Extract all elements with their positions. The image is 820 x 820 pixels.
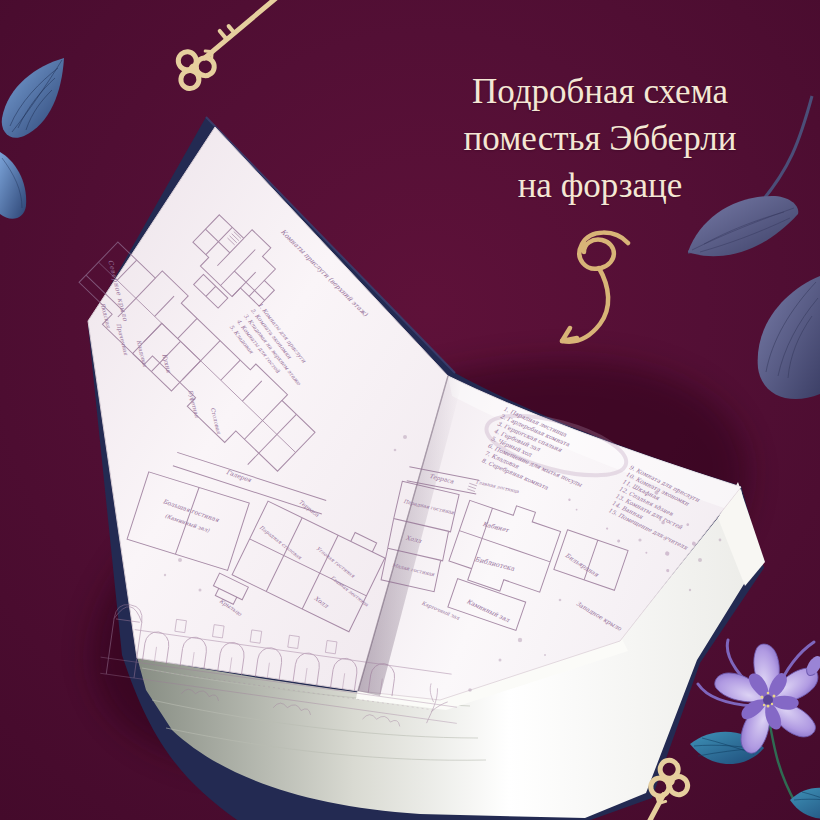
headline-line-2: поместья Эбберли <box>400 115 800 162</box>
headline-line-1: Подробная схема <box>400 68 800 115</box>
leaf-decoration-top-left <box>0 58 64 219</box>
open-book: Комнаты прислуги (верхний этаж) Северное… <box>63 117 765 820</box>
flower-decoration <box>690 640 820 819</box>
headline-line-3: на форзаце <box>400 162 800 209</box>
key-icon <box>167 0 289 92</box>
headline: Подробная схема поместья Эбберли на форз… <box>400 68 800 209</box>
promo-banner: Комнаты прислуги (верхний этаж) Северное… <box>0 0 820 820</box>
curly-arrow-icon <box>562 233 628 342</box>
